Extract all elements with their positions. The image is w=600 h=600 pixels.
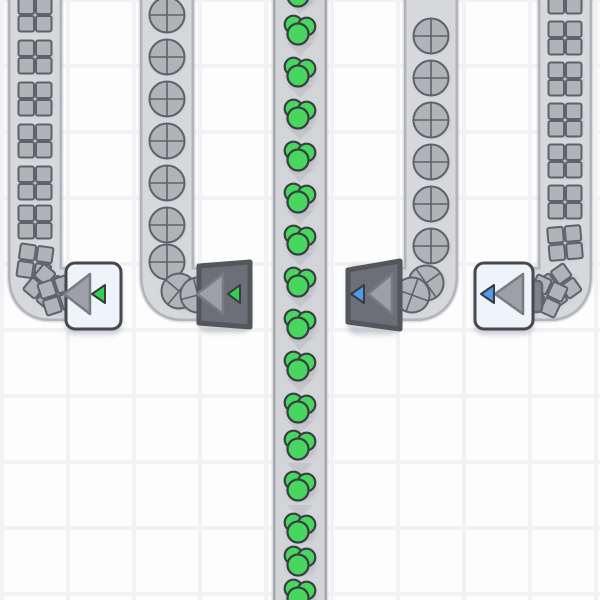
circle-shape-item [414,103,450,138]
circle-shape-item [414,19,450,54]
circle-shape-item [150,166,186,201]
conveyor-green-center[interactable] [285,0,316,600]
green-color-item [285,16,316,45]
green-color-item [285,100,316,129]
square-shape-item [549,63,584,97]
green-color-item [285,394,316,423]
green-color-item [285,514,316,543]
circle-shape-item [150,40,186,75]
circle-shape-item [414,145,450,180]
green-color-item [285,268,316,297]
tunnel-dark-blue-right[interactable] [347,261,401,335]
green-color-item [285,431,316,460]
green-color-item [285,142,316,171]
circle-shape-item [414,61,450,96]
factory-scene [0,0,600,600]
green-color-item [285,184,316,213]
green-color-item [285,226,316,255]
green-color-item [285,580,316,600]
green-color-item [285,472,316,501]
square-shape-item [549,22,584,56]
square-shape-item [19,167,54,201]
tunnel-light-blue-right[interactable] [474,263,542,335]
green-color-item [285,547,316,576]
square-shape-item [549,186,584,220]
green-color-item [285,310,316,339]
game-viewport[interactable] [0,0,600,600]
circle-shape-item [150,82,186,117]
square-shape-item [549,0,584,14]
square-shape-item [549,145,584,179]
green-color-item [285,352,316,381]
square-shape-item [547,225,584,261]
circle-shape-item [150,0,186,33]
tunnel-light-green-left[interactable] [64,263,122,335]
circle-shape-item [150,124,186,159]
square-shape-item [19,41,54,75]
green-color-item [285,58,316,87]
tunnel-dark-green-left[interactable] [197,262,251,333]
square-shape-item [19,206,54,240]
circle-shape-item [414,229,450,264]
square-shape-item [549,104,584,138]
circle-shape-item [150,208,186,243]
square-shape-item [19,0,54,32]
square-shape-item [19,125,54,159]
square-shape-item [19,83,54,117]
circle-shape-item [414,187,450,222]
